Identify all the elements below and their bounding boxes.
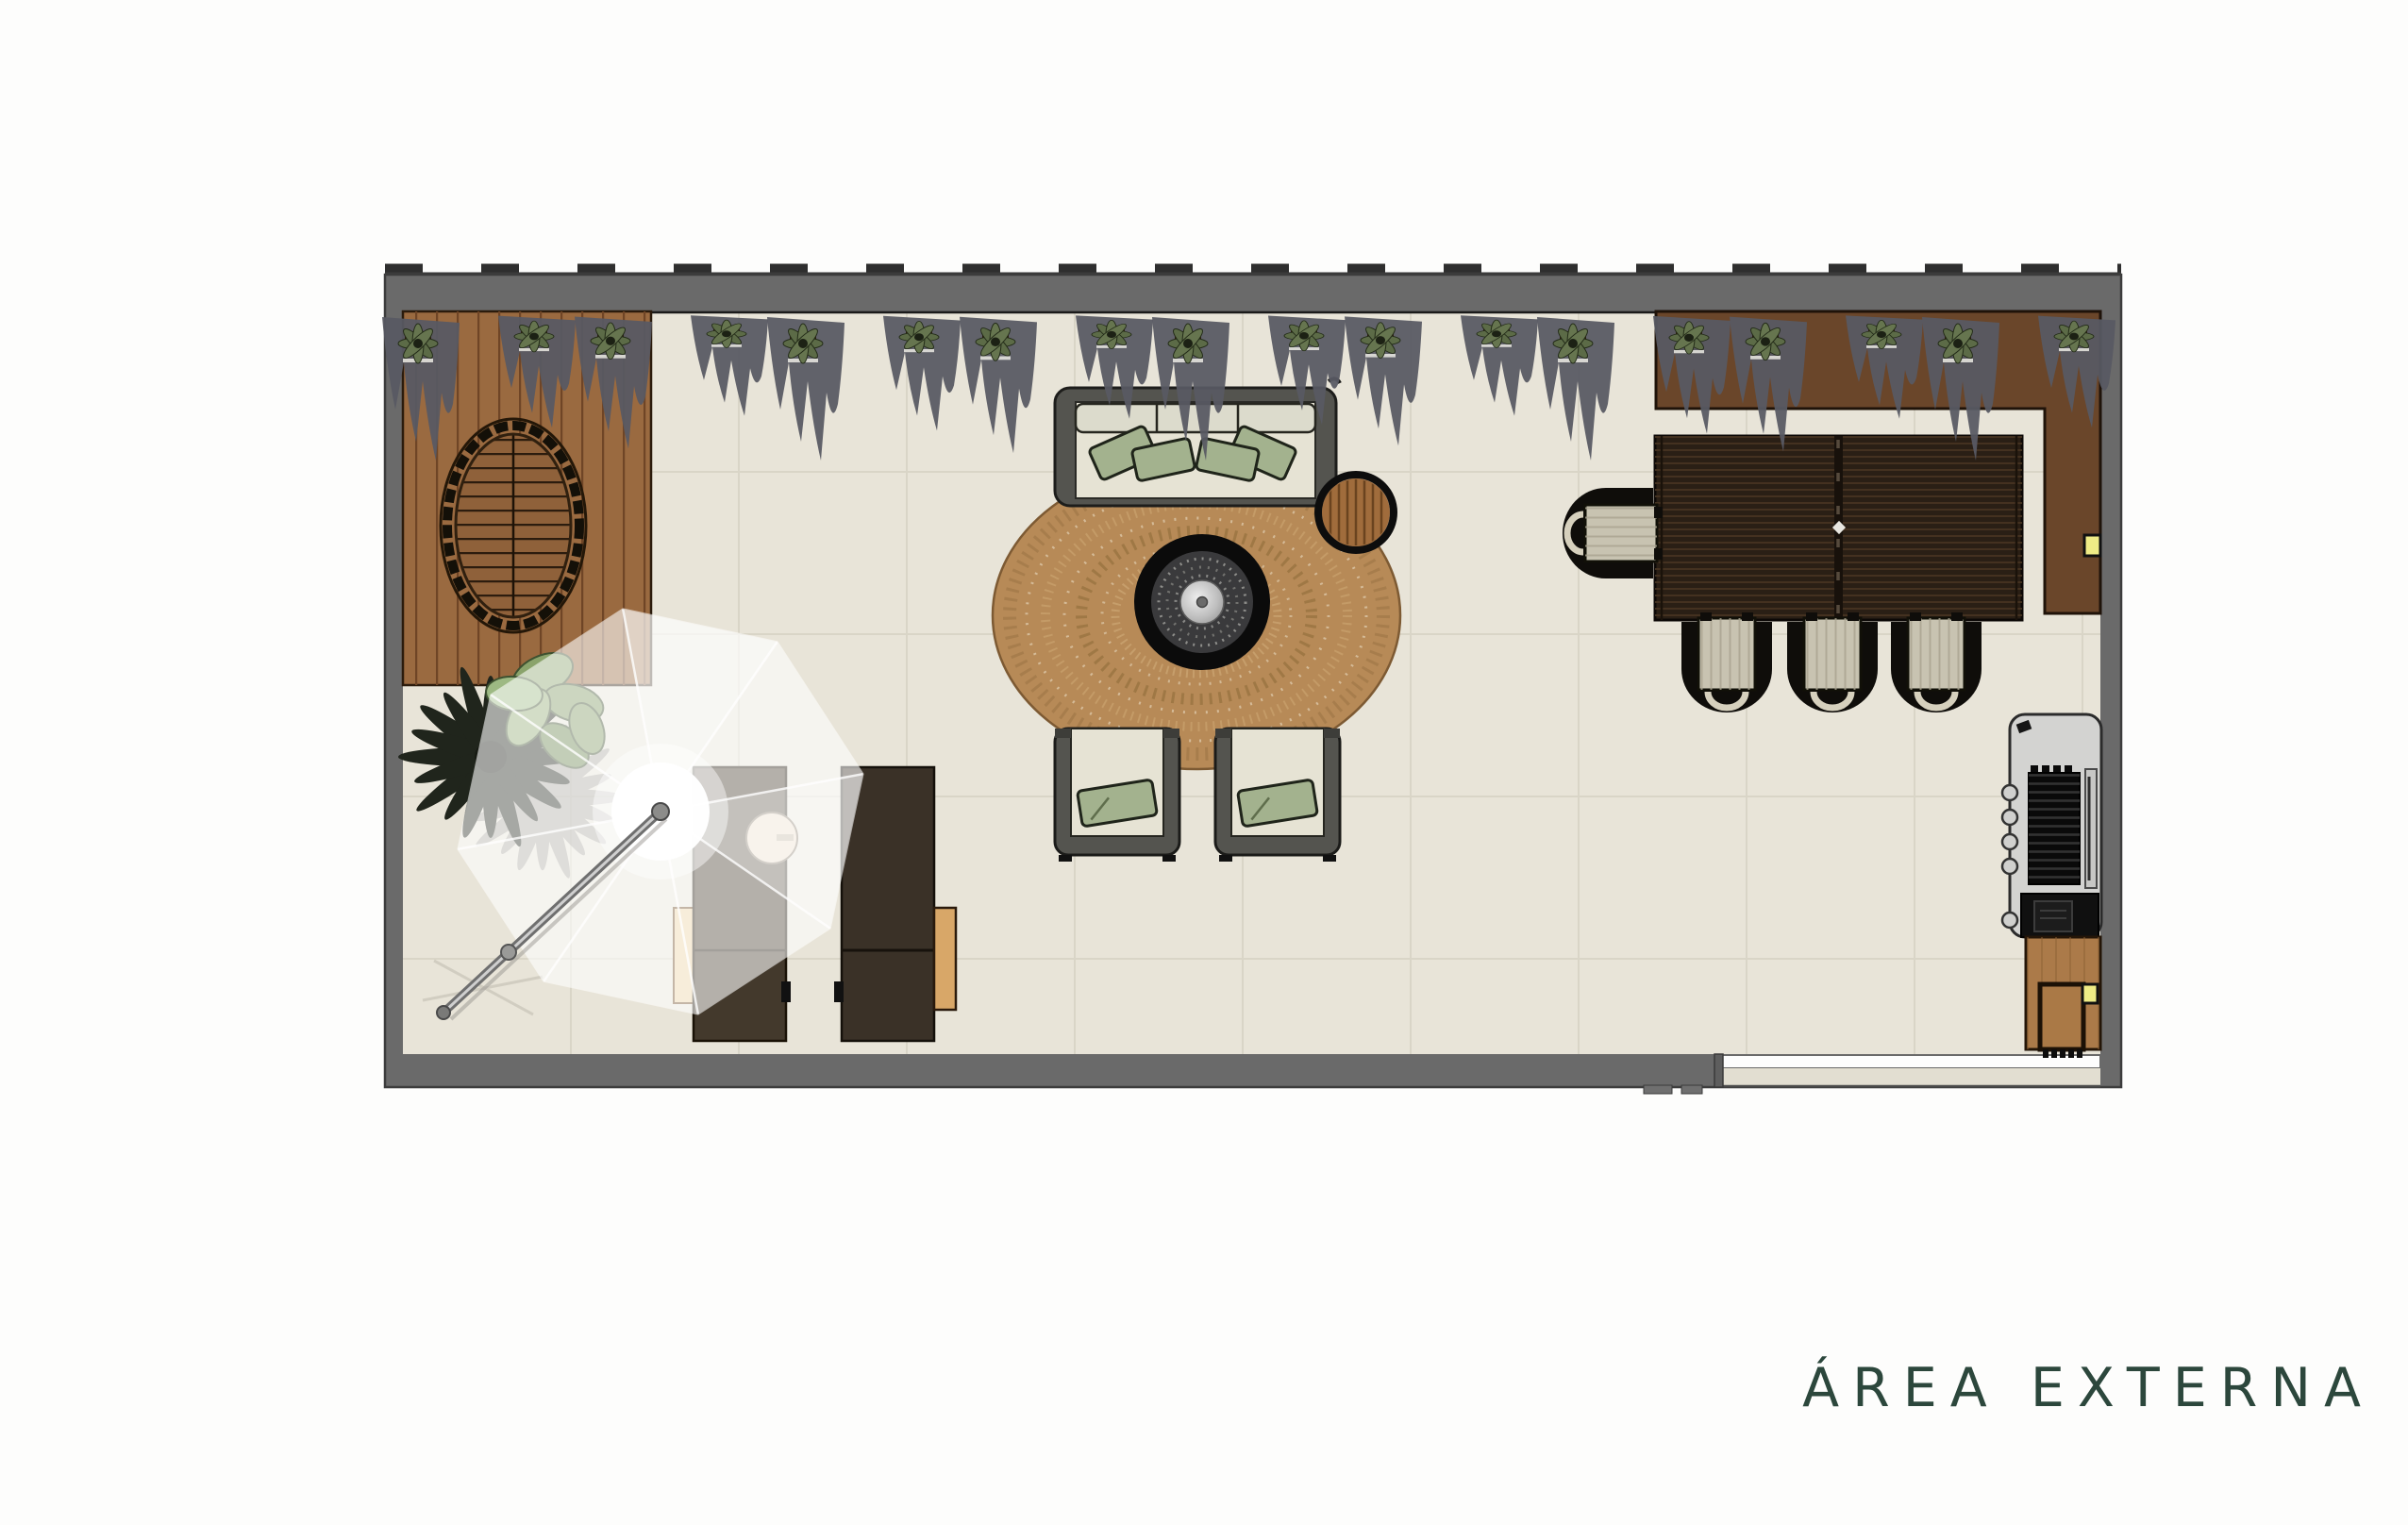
hot-tub (441, 419, 586, 632)
cabinet-light (2082, 984, 2098, 1003)
grill-grate (2029, 765, 2097, 888)
fire-pit (1134, 534, 1270, 670)
grill-cabinet (2026, 937, 2100, 1058)
dining-chair-3 (1891, 612, 1982, 712)
lounger-side-table (934, 908, 956, 1010)
floor-plan: ÁREA EXTERNA (0, 0, 2408, 1525)
dining-table (1655, 436, 2022, 620)
dining-chair-head (1563, 488, 1663, 578)
armchair-left (1055, 729, 1179, 862)
dining-chair-2 (1787, 612, 1878, 712)
page-title: ÁREA EXTERNA (1802, 1355, 2374, 1419)
dining-chair-1 (1681, 612, 1772, 712)
bbq-grill (2002, 714, 2101, 937)
armchair-right (1215, 729, 1340, 862)
screenshot-page: ÁREA EXTERNA (0, 0, 2408, 1525)
pole-tip (437, 1006, 450, 1019)
umbrella-hub (652, 803, 669, 820)
pole-joint (501, 945, 516, 960)
wall-light (2084, 535, 2100, 556)
side-table (1318, 475, 1394, 550)
